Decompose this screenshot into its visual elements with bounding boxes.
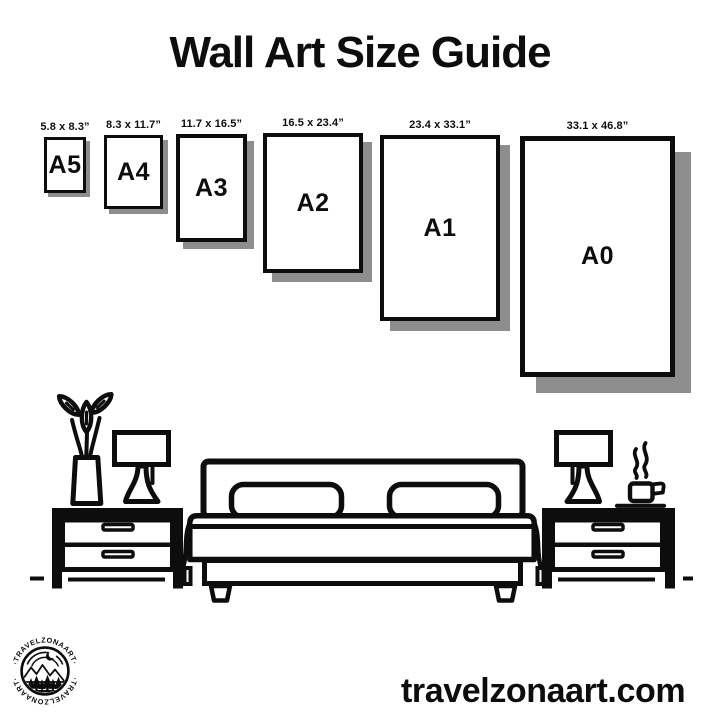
plant-leaf xyxy=(82,402,91,432)
page-title: Wall Art Size Guide xyxy=(0,31,720,75)
dimensions-label: 5.8 x 8.3” xyxy=(40,121,89,133)
blanket-tab-right xyxy=(538,568,544,584)
paper-box-A2: A2 xyxy=(263,133,363,273)
size-name-label: A5 xyxy=(49,151,82,180)
paper-box-A0: A0 xyxy=(520,136,675,377)
size-item-A1: 23.4 x 33.1”A1 xyxy=(380,135,500,321)
size-item-A3: 11.7 x 16.5”A3 xyxy=(176,134,247,242)
nightstand-left-leg-right xyxy=(176,518,181,586)
size-item-A2: 16.5 x 23.4”A2 xyxy=(263,133,363,273)
website-url: travelzonaart.com xyxy=(401,672,685,711)
bed-base xyxy=(205,561,521,584)
steam xyxy=(644,443,647,477)
dimensions-label: 33.1 x 46.8” xyxy=(567,120,629,132)
plant-leaf xyxy=(56,393,82,418)
nightstand-right xyxy=(545,511,673,587)
steam xyxy=(635,449,638,478)
bed-foot-left xyxy=(211,586,230,601)
bed xyxy=(184,462,544,601)
size-item-A5: 5.8 x 8.3”A5 xyxy=(44,137,86,193)
size-item-A0: 33.1 x 46.8”A0 xyxy=(520,136,675,377)
bedroom-illustration xyxy=(0,380,720,605)
dimensions-label: 8.3 x 11.7” xyxy=(106,119,161,131)
size-name-label: A4 xyxy=(117,158,150,187)
paper-box-A1: A1 xyxy=(380,135,500,321)
coffee-cup-icon xyxy=(617,443,664,506)
paper-box-A5: A5 xyxy=(44,137,86,193)
table-lamp-right-icon xyxy=(557,433,611,502)
pillow-left xyxy=(232,485,342,518)
lamp-shade xyxy=(557,433,611,465)
nightstand-left-top xyxy=(55,511,181,516)
bed-foot-right xyxy=(496,586,515,601)
paper-box-A4: A4 xyxy=(104,135,163,209)
dimensions-label: 16.5 x 23.4” xyxy=(282,117,344,129)
logo-ground xyxy=(23,690,68,692)
dimensions-label: 23.4 x 33.1” xyxy=(409,119,471,131)
blanket-tab-left xyxy=(185,568,191,584)
table-lamp-left-icon xyxy=(115,433,169,502)
size-item-A4: 8.3 x 11.7”A4 xyxy=(104,135,163,209)
plant-vase-icon xyxy=(56,391,114,503)
size-name-label: A3 xyxy=(195,174,228,203)
plant-stem xyxy=(72,420,82,457)
vase xyxy=(73,458,101,504)
brand-logo: ·TRAVELZONAART· ·TRAVELZONAART· xyxy=(7,629,85,711)
size-name-label: A1 xyxy=(424,214,457,243)
duvet xyxy=(190,516,534,560)
lamp-shade xyxy=(115,433,169,465)
nightstand-right-leg-right xyxy=(668,518,673,586)
nightstand-right-top xyxy=(545,511,673,516)
nightstand-left xyxy=(55,511,181,587)
size-name-label: A0 xyxy=(581,242,614,271)
cup-body xyxy=(630,484,653,502)
dimensions-label: 11.7 x 16.5” xyxy=(181,118,242,130)
paper-box-A3: A3 xyxy=(176,134,247,242)
nightstand-left-leg-left xyxy=(55,518,60,586)
size-name-label: A2 xyxy=(297,189,330,218)
plant-stem xyxy=(86,433,87,457)
pillow-right xyxy=(390,485,499,518)
